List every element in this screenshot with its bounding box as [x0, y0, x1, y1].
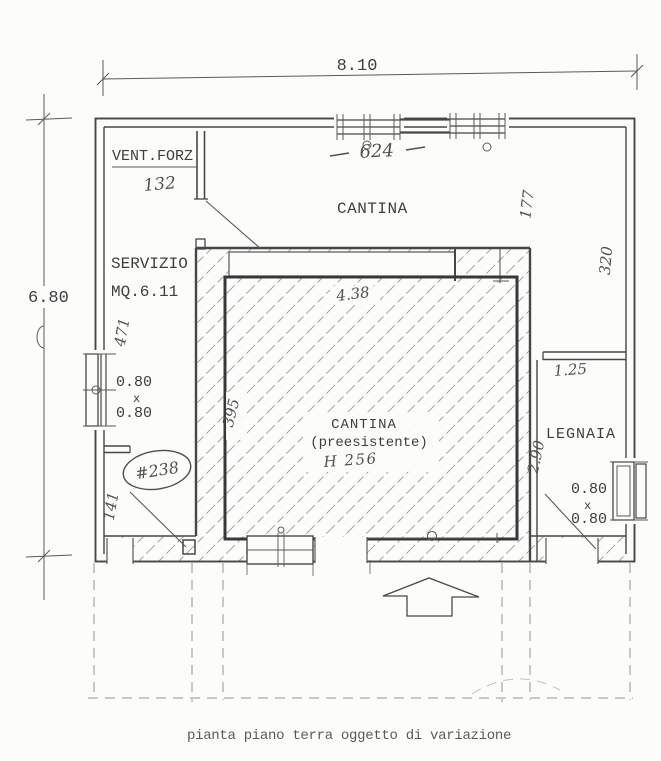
drawing-caption: pianta piano terra oggetto di variazione: [187, 728, 511, 744]
label-cantina-preesistente-sub: (preesistente): [310, 435, 428, 451]
label-left-window-x: x: [133, 392, 140, 406]
legnaia-window: [610, 458, 648, 524]
left-window: [83, 350, 116, 430]
dim-legnaia-125: 1.25: [553, 360, 588, 380]
label-left-window-w: 0.80: [116, 374, 152, 391]
label-vent-forz: VENT.FORZ: [112, 148, 193, 165]
dim-total-height: 6.80: [28, 289, 69, 308]
label-left-window-h: 0.80: [116, 405, 152, 422]
label-legnaia: LEGNAIA: [546, 426, 616, 443]
floor-plan-drawing: 8.10 6.80 VENT.FORZ CANTINA SERVIZIO MQ.…: [0, 0, 661, 761]
dim-right-wall-320: 320: [596, 245, 616, 276]
scanned-floor-plan-page: 8.10 6.80 VENT.FORZ CANTINA SERVIZIO MQ.…: [0, 0, 661, 761]
label-right-window-h: 0.80: [571, 511, 607, 528]
note-h256: H 256: [322, 449, 378, 471]
dim-windows-624: 624: [359, 140, 394, 163]
label-servizio: SERVIZIO: [111, 255, 188, 273]
dim-cantina-177: 177: [516, 189, 537, 220]
label-cantina: CANTINA: [337, 200, 408, 218]
label-right-window-w: 0.80: [571, 481, 607, 498]
label-servizio-area: MQ.6.11: [111, 283, 178, 301]
label-cantina-preesistente: CANTINA: [331, 417, 397, 433]
dim-total-width: 8.10: [337, 57, 378, 76]
dim-vent-forz-132: 132: [143, 173, 177, 196]
